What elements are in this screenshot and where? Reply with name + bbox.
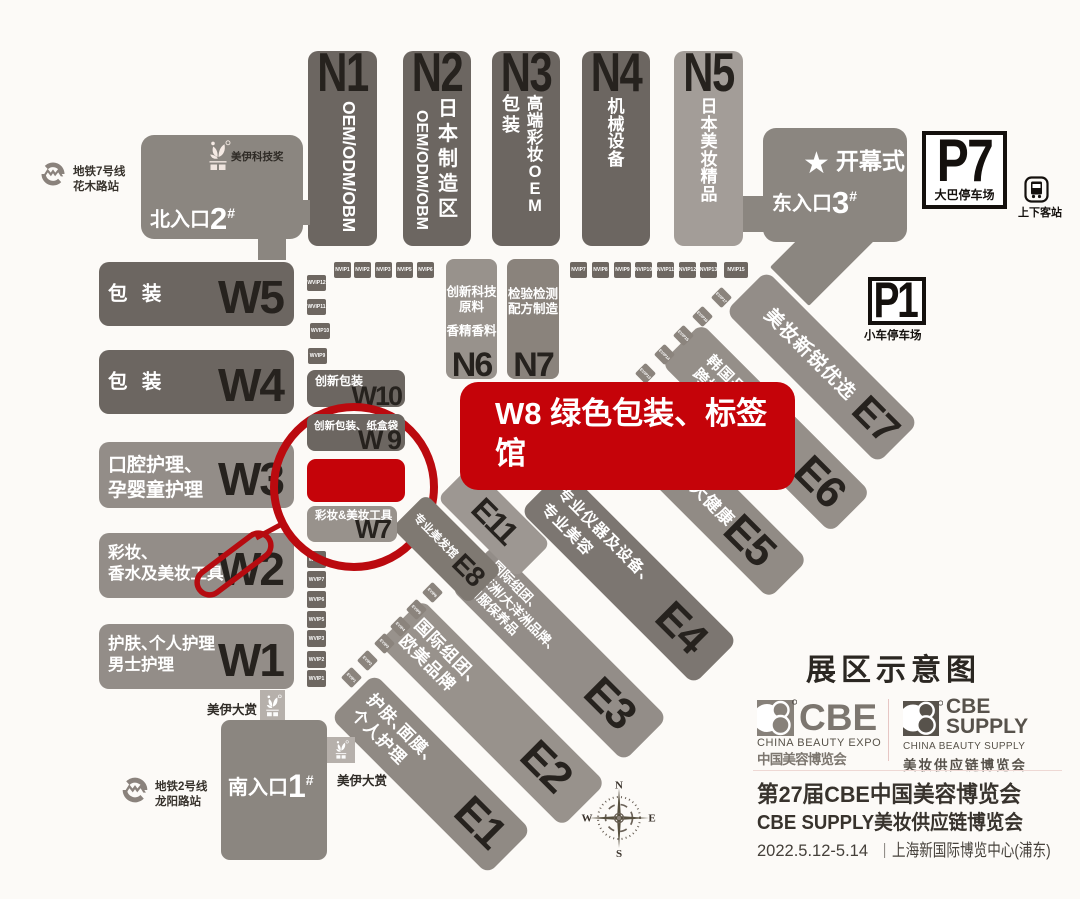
svg-text:W: W — [582, 813, 593, 825]
svg-text:E: E — [648, 813, 655, 825]
svg-text:S: S — [616, 848, 622, 860]
svg-text:N: N — [615, 780, 623, 792]
